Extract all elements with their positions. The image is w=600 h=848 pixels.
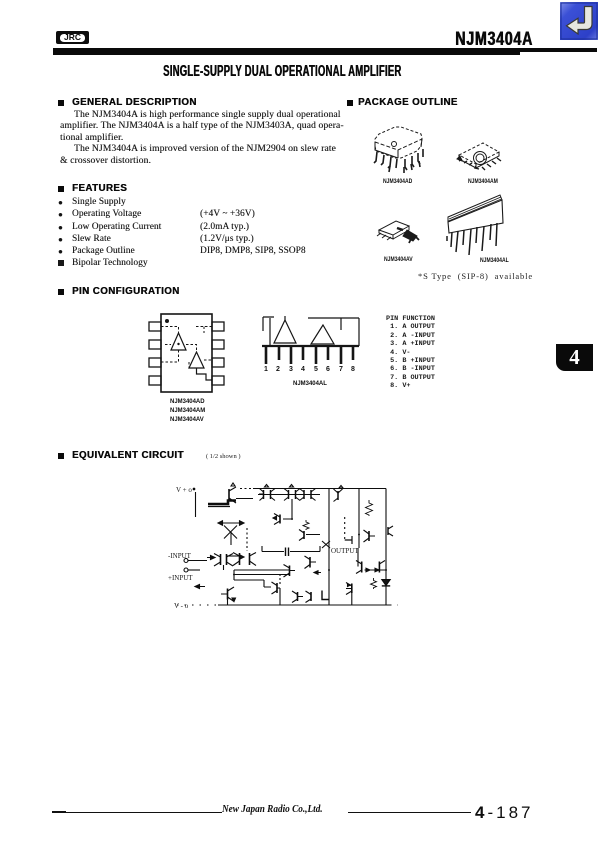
svg-text:OUTPUT: OUTPUT <box>331 547 359 555</box>
svg-text:V - o: V - o <box>174 602 189 610</box>
svg-text:-INPUT: -INPUT <box>168 552 192 560</box>
svg-text:+INPUT: +INPUT <box>168 574 193 582</box>
svg-text:V + o: V + o <box>176 486 192 494</box>
